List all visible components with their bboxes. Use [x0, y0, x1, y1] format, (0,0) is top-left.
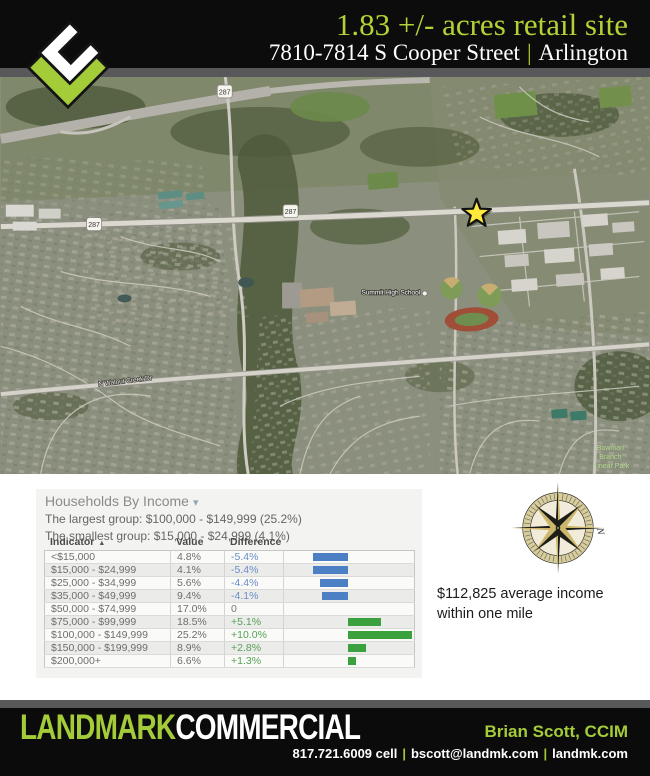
column-header-value: Value [176, 536, 203, 548]
income-difference: +10.0% [225, 629, 284, 642]
city-name: Arlington [539, 40, 628, 65]
svg-text:287: 287 [219, 89, 231, 96]
income-value: 6.6% [171, 655, 225, 668]
difference-bar-cell [284, 551, 415, 564]
column-header-difference: Difference [230, 536, 281, 548]
brand-landmark: LANDMARK [20, 708, 175, 747]
svg-text:287: 287 [88, 222, 100, 229]
difference-bar [313, 553, 348, 561]
svg-text:287: 287 [285, 209, 297, 216]
route-shield-287-c: 287 [217, 85, 232, 98]
page-title: 1.83 +/- acres retail site [336, 7, 628, 43]
difference-bar [348, 657, 356, 665]
table-row: $35,000 - $49,999 9.4% -4.1% [45, 590, 415, 603]
brand-wordmark: LANDMARKCOMMERCIAL [20, 708, 360, 748]
flyer-page: 1.83 +/- acres retail site 7810-7814 S C… [0, 0, 650, 776]
difference-bar-cell [284, 629, 415, 642]
income-difference: -5.4% [225, 564, 284, 577]
table-row: $150,000 - $199,999 8.9% +2.8% [45, 642, 415, 655]
income-range: $25,000 - $34,999 [45, 577, 171, 590]
difference-bar [348, 618, 381, 626]
difference-bar-cell [284, 564, 415, 577]
income-value: 18.5% [171, 616, 225, 629]
difference-bar-cell [284, 577, 415, 590]
table-row: <$15,000 4.8% -5.4% [45, 551, 415, 564]
difference-bar [320, 579, 348, 587]
income-difference: -5.4% [225, 551, 284, 564]
income-difference: +1.3% [225, 655, 284, 668]
income-difference: +5.1% [225, 616, 284, 629]
email-address: bscott@landmk.com [411, 746, 539, 761]
income-table-header: Indicator▲ Value Difference [44, 536, 414, 549]
income-range: $150,000 - $199,999 [45, 642, 171, 655]
route-shield-287: 287 [87, 218, 102, 231]
income-range: $75,000 - $99,999 [45, 616, 171, 629]
phone-number: 817.721.6009 cell [293, 746, 398, 761]
income-difference: -4.4% [225, 577, 284, 590]
income-value: 8.9% [171, 642, 225, 655]
income-range: $15,000 - $24,999 [45, 564, 171, 577]
difference-bar [313, 566, 348, 574]
income-difference: 0 [225, 603, 284, 616]
income-table: <$15,000 4.8% -5.4% $15,000 - $24,999 4.… [44, 550, 415, 668]
address-separator: | [520, 40, 539, 65]
difference-bar-cell [284, 642, 415, 655]
table-row: $15,000 - $24,999 4.1% -5.4% [45, 564, 415, 577]
income-range: $200,000+ [45, 655, 171, 668]
school-label: Summit High School [362, 289, 421, 296]
income-value: 4.1% [171, 564, 225, 577]
largest-group-text: The largest group: $100,000 - $149,999 (… [45, 512, 302, 526]
income-range: $50,000 - $74,999 [45, 603, 171, 616]
contact-separator: | [539, 746, 553, 761]
households-by-income-dropdown[interactable]: Households By Income▾ [45, 493, 199, 509]
difference-bar-cell [284, 603, 415, 616]
table-row: $100,000 - $149,999 25.2% +10.0% [45, 629, 415, 642]
difference-bar-cell [284, 590, 415, 603]
table-row: $50,000 - $74,999 17.0% 0 [45, 603, 415, 616]
street-address: 7810-7814 S Cooper Street [269, 40, 520, 65]
income-range: <$15,000 [45, 551, 171, 564]
difference-bar [322, 592, 348, 600]
footer-banner: LANDMARKCOMMERCIAL Brian Scott, CCIM 817… [0, 708, 650, 776]
income-value: 4.8% [171, 551, 225, 564]
route-shield-287-b: 287 [283, 205, 298, 218]
average-income-text: $112,825 average income within one mile [437, 584, 637, 625]
table-row: $75,000 - $99,999 18.5% +5.1% [45, 616, 415, 629]
compass-rose-icon: N [500, 472, 616, 584]
households-by-income-panel: Households By Income▾ The largest group:… [36, 489, 422, 678]
difference-bar [348, 631, 412, 639]
north-label: N [594, 526, 606, 536]
income-value: 5.6% [171, 577, 225, 590]
difference-bar [348, 644, 366, 652]
brand-commercial: COMMERCIAL [175, 708, 360, 747]
income-range: $100,000 - $149,999 [45, 629, 171, 642]
column-header-indicator[interactable]: Indicator▲ [50, 536, 105, 548]
income-value: 25.2% [171, 629, 225, 642]
landmark-commercial-logo-icon [22, 13, 114, 137]
agent-name: Brian Scott, CCIM [484, 722, 628, 742]
income-difference: +2.8% [225, 642, 284, 655]
difference-bar-cell [284, 616, 415, 629]
address-line: 7810-7814 S Cooper Street|Arlington [269, 40, 628, 66]
website-url: landmk.com [552, 746, 628, 761]
income-value: 17.0% [171, 603, 225, 616]
chevron-down-icon: ▾ [189, 497, 199, 509]
table-row: $25,000 - $34,999 5.6% -4.4% [45, 577, 415, 590]
contact-line: 817.721.6009 cell|bscott@landmk.com|land… [293, 746, 629, 761]
income-difference: -4.1% [225, 590, 284, 603]
difference-bar-cell [284, 655, 415, 668]
income-value: 9.4% [171, 590, 225, 603]
table-row: $200,000+ 6.6% +1.3% [45, 655, 415, 668]
income-range: $35,000 - $49,999 [45, 590, 171, 603]
contact-separator: | [397, 746, 411, 761]
sort-ascending-icon: ▲ [94, 540, 105, 547]
